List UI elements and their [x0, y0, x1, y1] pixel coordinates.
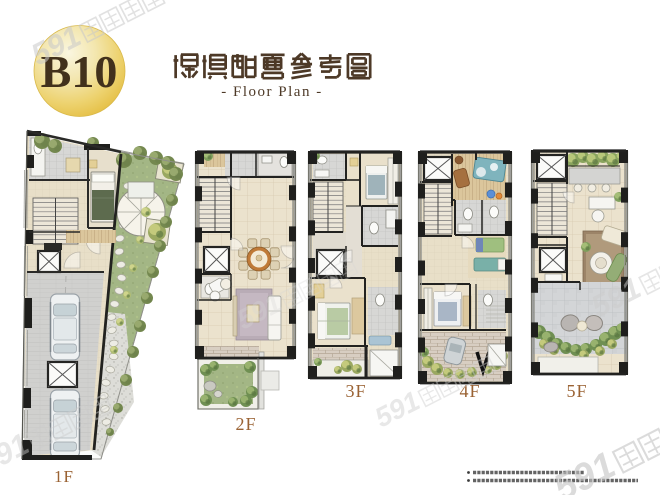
svg-text:- Floor Plan -: - Floor Plan - — [221, 84, 322, 100]
svg-text:3F: 3F — [345, 381, 366, 401]
svg-text:2F: 2F — [235, 414, 256, 434]
svg-text:1F: 1F — [54, 467, 74, 486]
svg-text:5F: 5F — [566, 381, 587, 401]
